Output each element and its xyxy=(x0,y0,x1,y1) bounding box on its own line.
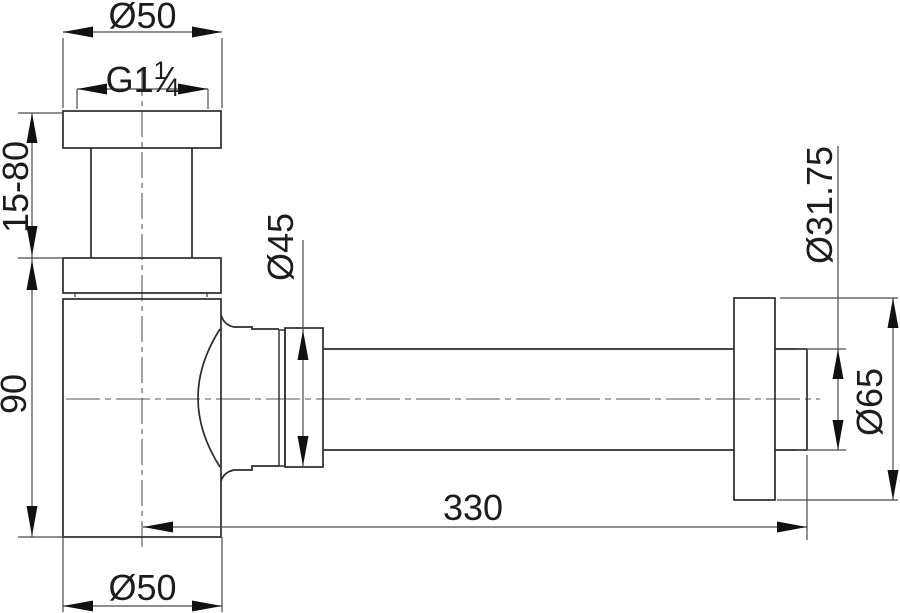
outlet-washer xyxy=(279,330,285,466)
arrow-down xyxy=(27,506,38,536)
outlet-elbow-bottom xyxy=(221,466,279,481)
arrow-left xyxy=(143,522,173,533)
label-wall-flange-diameter: Ø65 xyxy=(851,347,891,457)
label-body-height: 90 xyxy=(0,364,35,424)
technical-drawing-canvas: Ø50 G11⁄4 15-80 90 Ø45 Ø50 330 Ø31.75 Ø6… xyxy=(0,0,900,613)
outlet-elbow-top xyxy=(221,315,279,329)
arrow-up xyxy=(27,260,38,290)
thread-prefix: G1 xyxy=(106,59,154,100)
outlet-elbow-arc xyxy=(198,329,220,467)
label-horizontal-length: 330 xyxy=(403,489,543,527)
label-adjustable-height: 15-80 xyxy=(0,132,37,242)
label-thread-size: G11⁄4 xyxy=(63,52,222,107)
arrow-right xyxy=(777,522,807,533)
label-outlet-pipe-diameter: Ø31.75 xyxy=(801,135,841,275)
arrow-up xyxy=(298,330,309,360)
centerlines xyxy=(66,70,820,548)
arrow-down xyxy=(298,436,309,466)
arrow-down xyxy=(888,470,899,500)
label-outlet-nut-diameter: Ø45 xyxy=(262,197,302,297)
label-inlet-flange-diameter: Ø50 xyxy=(63,0,222,35)
label-body-diameter: Ø50 xyxy=(63,569,222,607)
arrow-up xyxy=(888,298,899,328)
thread-fraction-denominator: 4 xyxy=(166,74,180,102)
arrow-up xyxy=(833,349,844,379)
arrow-down xyxy=(833,420,844,450)
part-outline xyxy=(63,111,807,537)
